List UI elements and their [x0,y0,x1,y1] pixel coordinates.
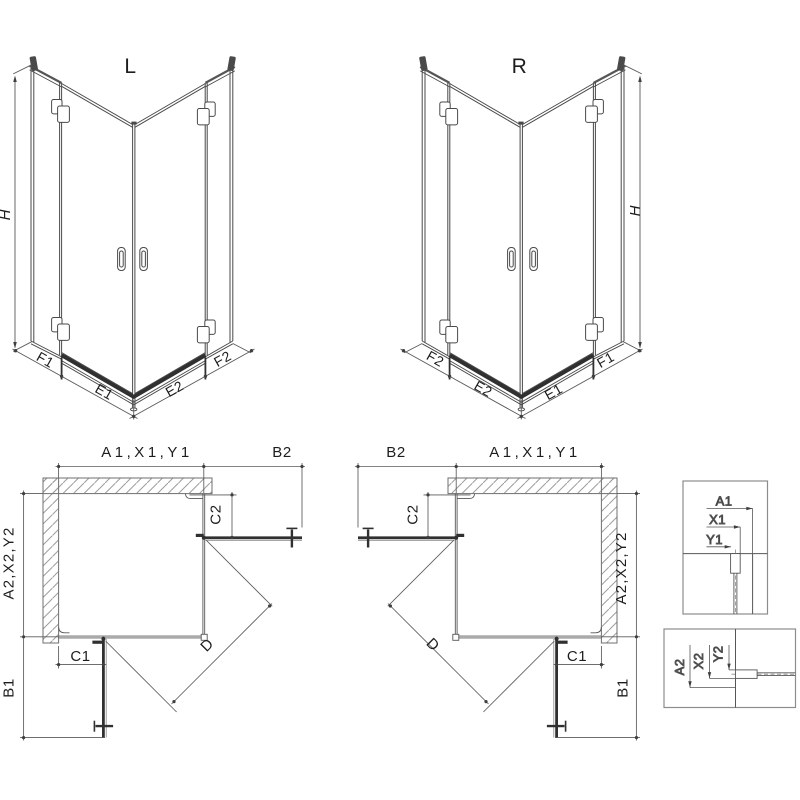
detail-top-label-x1: X1 [709,512,726,527]
wall-hatch-top-right-plan [449,479,617,494]
plan-left-label-b1: B1 [1,678,18,698]
iso-view-left: L H F1 E1 E2 F2 [0,55,255,420]
plan-view-left: A1,X1,Y1 B2 C2 A2,X2,Y2 B1 C1 D [1,444,306,741]
iso-left-seg-e2: E2 [163,377,187,400]
plan-right-label-a1x1y1: A1,X1,Y1 [489,444,580,461]
wall-hatch-side-left-plan [44,479,59,643]
plan-view-right: B2 A1,X1,Y1 C2 A2,X2,Y2 B1 C1 D [355,444,640,741]
plan-left-label-c2: C2 [208,504,225,524]
iso-right-height-label: H [627,205,644,216]
plan-left-label-a2x2y2: A2,X2,Y2 [1,527,18,600]
iso-right-title: R [512,55,528,78]
detail-wall-profile-side: A2 X2 Y2 [664,629,796,708]
technical-drawing: L H F1 E1 E2 F2 R H F2 E2 E1 F1 A1,X1,Y1… [0,0,800,800]
plan-right-label-c1: C1 [567,648,587,665]
iso-left-seg-f2: F2 [211,347,234,370]
iso-left-seg-f1: F1 [34,348,57,371]
iso-right-seg-f2: F2 [424,347,447,370]
wall-hatch-top-left-plan [44,479,212,494]
iso-right-seg-f1: F1 [594,348,617,371]
plan-right-label-c2: C2 [405,504,422,524]
detail-side-label-y2: Y2 [711,646,726,663]
plan-right-label-b2: B2 [386,444,406,461]
plan-left-label-a1x1y1: A1,X1,Y1 [101,444,192,461]
technical-drawing-page: L H F1 E1 E2 F2 R H F2 E2 E1 F1 A1,X1,Y1… [0,0,800,800]
detail-side-label-a2: A2 [672,659,687,676]
plan-right-label-d: D [423,635,443,655]
plan-right-label-b1: B1 [615,678,632,698]
detail-top-label-y1: Y1 [706,532,723,547]
plan-left-label-c1: C1 [70,648,90,665]
detail-wall-profile-top: A1 X1 Y1 [683,481,768,614]
plan-right-label-a2x2y2: A2,X2,Y2 [613,532,630,605]
detail-top-label-a1: A1 [716,494,733,509]
iso-left-title: L [124,55,136,78]
detail-side-label-x2: X2 [691,653,706,670]
iso-left-height-label: H [0,209,14,220]
iso-view-right: R H F2 E2 E1 F1 [401,55,645,420]
plan-left-label-b2: B2 [272,444,292,461]
